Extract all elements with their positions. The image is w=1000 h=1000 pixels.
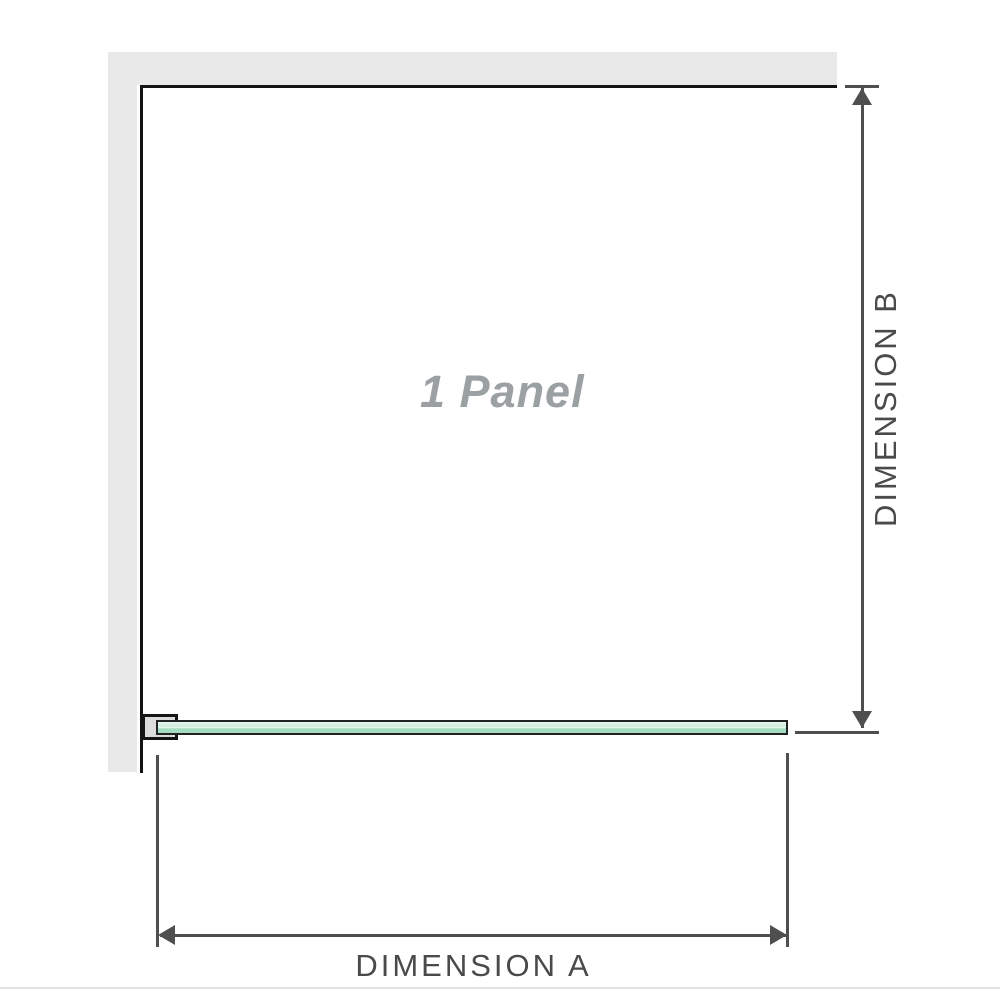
wall-left [108, 52, 137, 772]
footer-divider [0, 987, 1000, 989]
wall-top [108, 52, 837, 85]
dimension-b-tick-bottom [795, 731, 879, 734]
panel-label: 1 Panel [420, 366, 585, 418]
dimension-a-extension-right [786, 753, 789, 947]
dimension-a-line [160, 934, 787, 937]
glass-panel [156, 720, 788, 735]
arrow-up-icon [852, 88, 872, 105]
arrow-left-icon [158, 925, 175, 945]
dimension-b-label: DIMENSION B [868, 289, 904, 527]
wall-edge-left-line [140, 85, 143, 773]
arrow-down-icon [852, 711, 872, 728]
shower-panel-diagram: DIMENSION B DIMENSION A 1 Panel [0, 0, 1000, 1000]
wall-edge-top-line [140, 85, 837, 88]
dimension-a-label: DIMENSION A [160, 948, 787, 984]
arrow-right-icon [770, 925, 787, 945]
dimension-b-line [861, 88, 864, 728]
dimension-a-extension-left [156, 755, 159, 947]
